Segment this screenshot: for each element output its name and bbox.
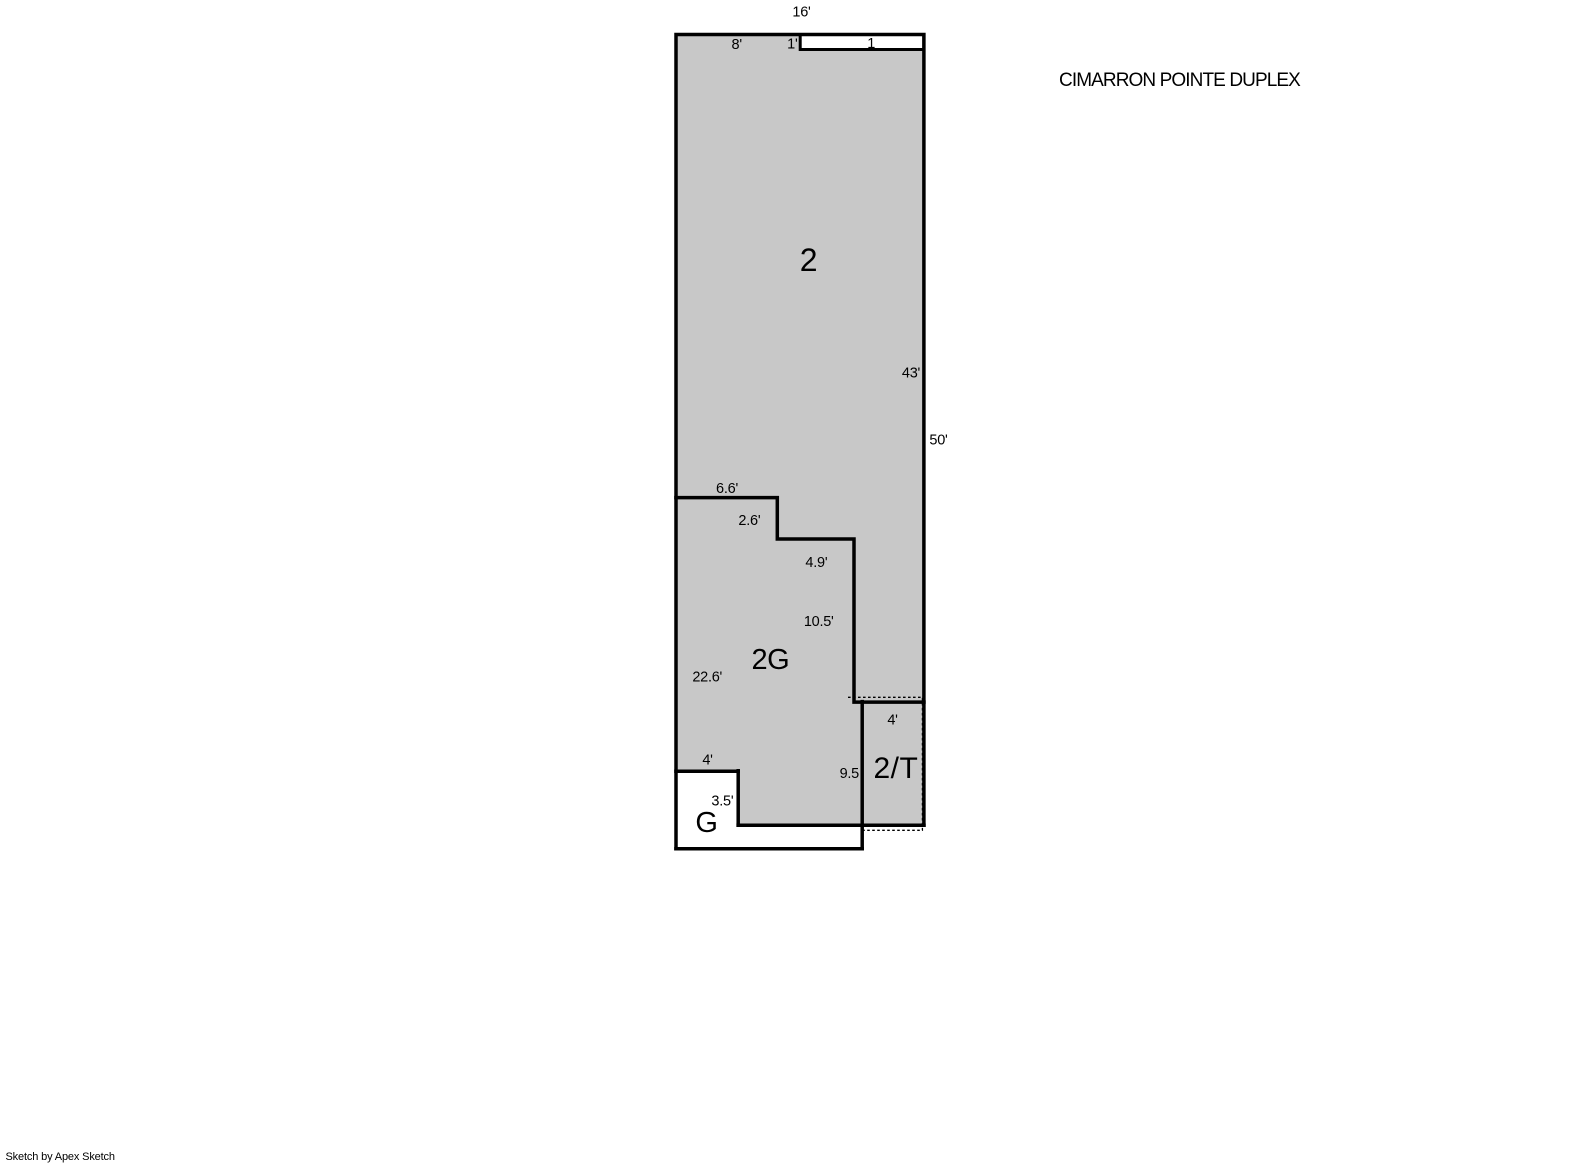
svg-text:1: 1	[867, 36, 875, 52]
svg-text:4': 4'	[887, 713, 898, 729]
svg-text:8': 8'	[732, 37, 743, 53]
svg-text:9.5: 9.5	[840, 766, 860, 782]
svg-text:2G: 2G	[751, 644, 789, 676]
svg-text:6.6': 6.6'	[716, 481, 738, 497]
svg-text:43': 43'	[902, 365, 921, 381]
svg-text:1': 1'	[787, 37, 798, 53]
svg-text:Sketch by Apex Sketch: Sketch by Apex Sketch	[6, 1151, 115, 1163]
svg-text:2: 2	[800, 242, 818, 278]
svg-text:2/T: 2/T	[873, 752, 918, 785]
svg-text:4': 4'	[702, 752, 713, 768]
svg-text:2.6': 2.6'	[738, 513, 760, 529]
svg-text:G: G	[695, 807, 718, 839]
svg-text:22.6': 22.6'	[692, 670, 722, 686]
svg-text:50': 50'	[929, 433, 948, 449]
svg-text:16': 16'	[792, 4, 811, 20]
svg-text:CIMARRON POINTE DUPLEX: CIMARRON POINTE DUPLEX	[1059, 70, 1301, 91]
svg-text:10.5': 10.5'	[804, 614, 834, 630]
svg-text:4.9': 4.9'	[805, 555, 827, 571]
